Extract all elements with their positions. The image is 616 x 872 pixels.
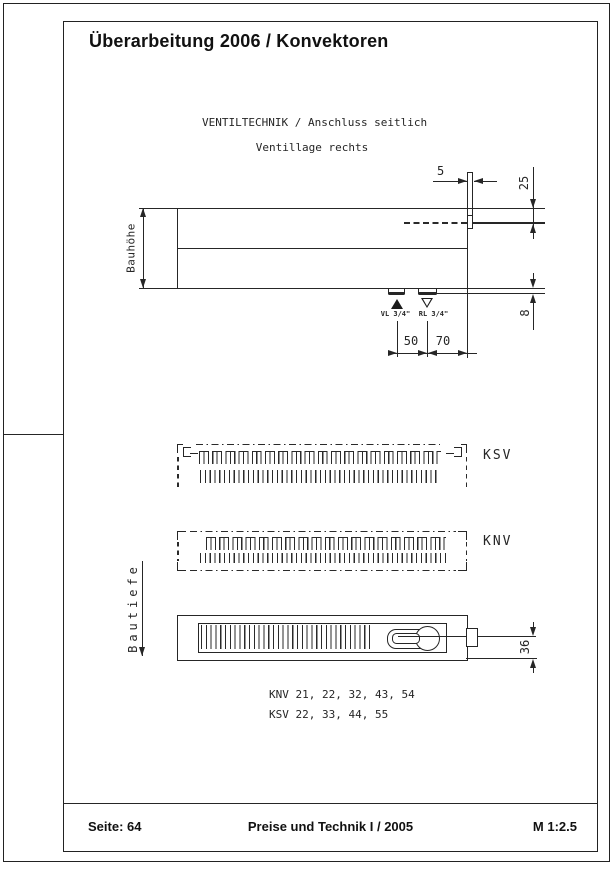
dim-70-arrow-left xyxy=(428,350,437,356)
supply-label: VL 3/4" xyxy=(380,310,411,318)
body-bottom-line xyxy=(139,288,545,289)
knv-fin-row xyxy=(200,553,447,564)
return-triangle-fill xyxy=(423,299,431,306)
footer-rule xyxy=(63,803,598,804)
rl-stub-bottom xyxy=(418,292,437,294)
margin-fold-mark xyxy=(4,434,63,435)
dim-36-text: 36 xyxy=(518,640,532,654)
plate-top-cap xyxy=(467,172,474,173)
ksv-top-dashed-edge xyxy=(196,444,440,445)
ksv-right-end-cap xyxy=(454,447,462,457)
dim-25-arrow-bottom xyxy=(530,224,536,233)
valve-slot xyxy=(392,633,420,644)
dim-25-text: 25 xyxy=(517,176,531,190)
model-list-ksv: KSV 22, 33, 44, 55 xyxy=(269,708,388,721)
ksv-left-end-cap xyxy=(183,447,191,457)
bautiefe-label: Bautiefe xyxy=(126,563,140,653)
knv-corner-bl-h xyxy=(177,570,186,571)
dim-8-line-bottom xyxy=(533,303,534,330)
knv-corner-tr-v xyxy=(466,531,467,540)
supply-triangle-icon xyxy=(391,299,403,309)
body-left-edge xyxy=(177,208,178,288)
bauhoehe-dim-line xyxy=(143,208,144,288)
footer-scale: M 1:2.5 xyxy=(533,819,577,834)
plate-inner-tick xyxy=(467,215,474,216)
body-right-edge-extension xyxy=(467,172,468,358)
pipe-centerline-dashed xyxy=(404,222,467,223)
knv-view-label: KNV xyxy=(483,534,512,549)
dim-5-arrow-right xyxy=(458,178,467,184)
plan-grille-hatch xyxy=(201,625,373,650)
drawing-heading-1: VENTILTECHNIK / Anschluss seitlich xyxy=(202,116,424,129)
ksv-right-bracket-h xyxy=(461,444,467,445)
dim-70-text: 70 xyxy=(432,334,454,348)
dim-8-arrow-bottom xyxy=(530,294,536,303)
knv-left-dashed-edge xyxy=(177,542,178,561)
knv-corner-br-v xyxy=(466,562,467,571)
dim-36-bottom-ext xyxy=(466,658,537,659)
dim-50-arrow-left xyxy=(388,350,397,356)
catalog-page: Überarbeitung 2006 / Konvektoren VENTILT… xyxy=(0,0,616,872)
ksv-right-step xyxy=(446,453,454,454)
footer-center-text: Preise und Technik I / 2005 xyxy=(63,819,598,834)
ksv-left-step xyxy=(190,453,198,454)
plate-bottom-cap xyxy=(467,228,474,229)
dim-8-arrow-top xyxy=(530,279,536,288)
dim-36-arrow-top xyxy=(530,627,536,636)
knv-top-dashed-edge xyxy=(190,531,456,532)
bautiefe-dim-line xyxy=(142,561,143,656)
return-label: RL 3/4" xyxy=(418,310,449,318)
body-divider-line xyxy=(177,248,467,249)
ksv-fin-row xyxy=(200,470,440,483)
dim-70-arrow-right xyxy=(458,350,467,356)
dim-5-arrow-left xyxy=(474,178,483,184)
dim-8-text: 8 xyxy=(518,309,532,316)
knv-corner-tl-h xyxy=(177,531,186,532)
ksv-right-bracket-v xyxy=(466,444,467,453)
ksv-left-dashed-edge xyxy=(177,457,178,489)
knv-corner-tl-v xyxy=(177,531,178,540)
dim-36-line-bottom xyxy=(533,667,534,673)
knv-louver-row xyxy=(206,537,446,550)
knv-bottom-dashed-edge xyxy=(190,570,456,571)
bauhoehe-label: Bauhöhe xyxy=(125,223,138,273)
knv-corner-bl-v xyxy=(177,562,178,571)
dim-5-text: 5 xyxy=(437,164,444,178)
dim-25-arrow-top xyxy=(530,199,536,208)
model-list-knv: KNV 21, 22, 32, 43, 54 xyxy=(269,688,415,701)
page-title: Überarbeitung 2006 / Konvektoren xyxy=(89,31,388,52)
vl-stub-bottom xyxy=(388,292,405,294)
ksv-right-dashed-edge xyxy=(466,457,467,489)
drawing-heading-2: Ventillage rechts xyxy=(202,141,422,154)
ksv-left-bracket-v xyxy=(177,444,178,453)
ksv-louver-row xyxy=(199,451,441,464)
bauhoehe-arrow-down xyxy=(140,279,146,288)
dim-50-text: 50 xyxy=(400,334,422,348)
bauhoehe-arrow-up xyxy=(140,208,146,217)
knv-right-dashed-edge xyxy=(466,542,467,561)
dim-50-arrow-right xyxy=(418,350,427,356)
body-top-line xyxy=(139,208,545,209)
ksv-view-label: KSV xyxy=(483,448,512,463)
ksv-left-bracket-h xyxy=(177,444,183,445)
valve-connection-nub xyxy=(466,628,478,648)
